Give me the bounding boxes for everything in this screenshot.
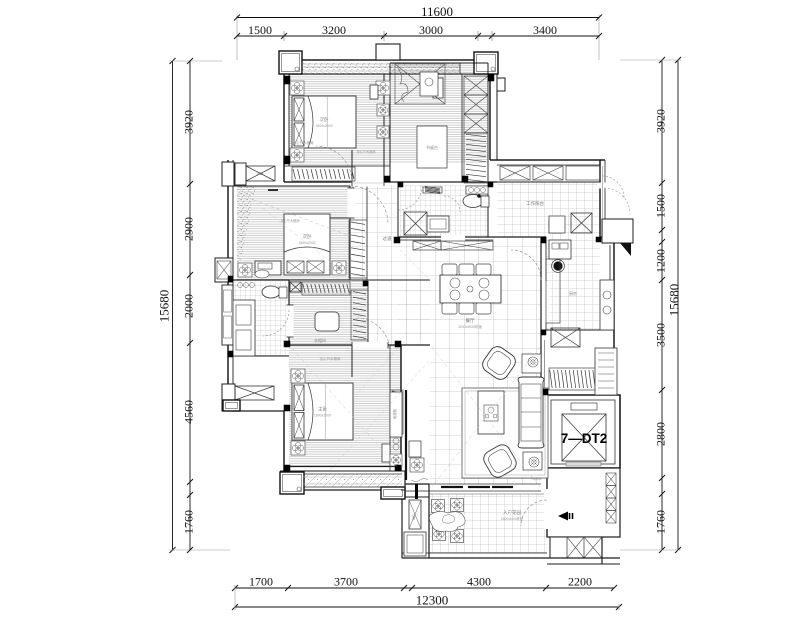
svg-text:入户花园: 入户花园 (503, 509, 521, 516)
svg-text:1500: 1500 (248, 23, 272, 37)
svg-text:2900: 2900 (182, 217, 196, 241)
svg-text:1800x2000: 1800x2000 (314, 414, 331, 418)
svg-text:次卧: 次卧 (303, 233, 312, 240)
svg-text:3200: 3200 (322, 23, 346, 37)
svg-text:12300: 12300 (416, 593, 449, 608)
svg-text:15680: 15680 (157, 290, 172, 323)
svg-text:衣帽间: 衣帽间 (314, 337, 326, 343)
svg-text:电视柜: 电视柜 (392, 408, 397, 419)
svg-text:主卧: 主卧 (318, 406, 327, 413)
svg-text:厨房: 厨房 (569, 290, 577, 296)
svg-text:3500: 3500 (654, 323, 668, 347)
svg-text:3920: 3920 (182, 110, 196, 134)
svg-text:3200x4000栋板: 3200x4000栋板 (458, 324, 483, 329)
svg-text:工作阳台: 工作阳台 (526, 200, 544, 207)
svg-text:1700: 1700 (249, 575, 273, 589)
svg-text:1500x2000: 1500x2000 (315, 124, 332, 128)
svg-text:4300: 4300 (467, 575, 491, 589)
svg-text:1200: 1200 (654, 249, 668, 273)
svg-text:餐厅: 餐厅 (466, 317, 475, 324)
svg-text:书桌台: 书桌台 (426, 144, 438, 150)
svg-text:1760: 1760 (654, 510, 668, 534)
svg-text:1500: 1500 (654, 194, 668, 218)
svg-text:2200: 2200 (568, 575, 592, 589)
svg-text:全心节大格局: 全心节大格局 (320, 356, 341, 361)
svg-text:3700: 3700 (334, 575, 358, 589)
svg-text:11600: 11600 (421, 4, 453, 19)
svg-text:2000: 2000 (182, 294, 196, 318)
svg-text:全心节大格局: 全心节大格局 (356, 149, 375, 154)
svg-text:1500x2000: 1500x2000 (298, 241, 315, 245)
svg-text:4560: 4560 (182, 400, 196, 424)
svg-text:3000: 3000 (419, 23, 443, 37)
svg-text:3400: 3400 (533, 23, 557, 37)
svg-text:7—DT2: 7—DT2 (561, 431, 608, 446)
svg-text:全心节大格局: 全心节大格局 (280, 218, 299, 223)
svg-text:1760: 1760 (182, 510, 196, 534)
svg-text:过道: 过道 (383, 235, 392, 242)
svg-text:+50.00: +50.00 (531, 477, 542, 481)
svg-text:全心节大格局: 全心节大格局 (293, 140, 314, 145)
svg-text:2600x4000栋板: 2600x4000栋板 (501, 516, 524, 521)
svg-text:15680: 15680 (667, 284, 682, 317)
svg-text:次卧: 次卧 (320, 116, 329, 123)
svg-text:2800: 2800 (654, 422, 668, 446)
svg-text:WC: WC (412, 514, 416, 520)
svg-text:3920: 3920 (654, 109, 668, 133)
svg-text:243: 243 (257, 171, 264, 176)
